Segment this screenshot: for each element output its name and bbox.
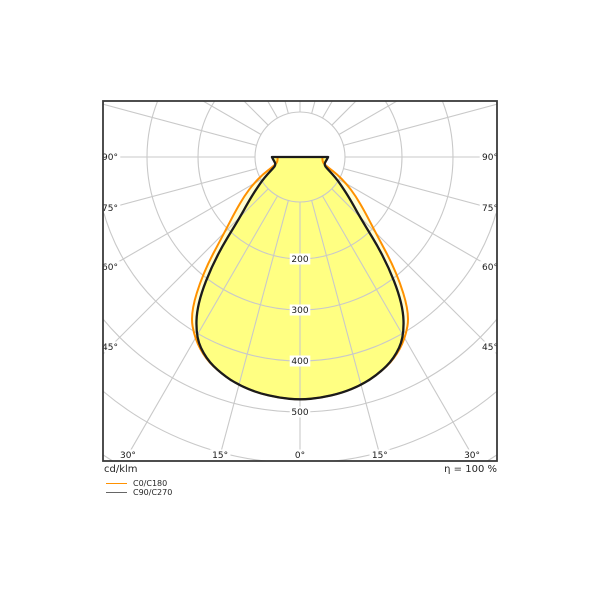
legend-label-c0-c180: C0/C180 xyxy=(133,479,167,488)
grid-spoke xyxy=(332,0,600,125)
angle-tick-label: 60° xyxy=(482,263,498,273)
angle-tick-label: 0° xyxy=(295,451,305,461)
grid-spoke xyxy=(0,2,257,146)
angle-tick-label: 75° xyxy=(102,204,118,214)
angle-tick-label: 75° xyxy=(482,204,498,214)
grid-spoke xyxy=(0,0,268,125)
grid-spoke xyxy=(343,2,600,146)
legend-label-c90-c270: C90/C270 xyxy=(133,488,172,497)
legend: C0/C180 C90/C270 xyxy=(106,479,172,497)
photometric-diagram: 20030040050030°15°0°15°30°90°90°75°75°60… xyxy=(0,0,600,600)
grid-spoke xyxy=(0,0,261,135)
angle-tick-label: 90° xyxy=(482,153,498,163)
angle-tick-label: 60° xyxy=(102,263,118,273)
angle-tick-label: 90° xyxy=(102,153,118,163)
grid-spoke xyxy=(312,0,456,114)
grid-spoke xyxy=(339,0,600,135)
radial-tick-label: 500 xyxy=(291,408,308,418)
radial-tick-label: 300 xyxy=(291,306,308,316)
polar-light-distribution-plot: 20030040050030°15°0°15°30°90°90°75°75°60… xyxy=(0,0,600,600)
angle-tick-label: 15° xyxy=(372,451,388,461)
legend-item-c0-c180: C0/C180 xyxy=(106,479,172,488)
light-output-ratio-label: η = 100 % xyxy=(444,464,497,476)
radial-tick-label: 400 xyxy=(291,357,308,367)
grid-spoke xyxy=(145,0,289,114)
radial-units-label: cd/klm xyxy=(104,464,138,476)
angle-tick-label: 45° xyxy=(102,343,118,353)
angle-tick-label: 45° xyxy=(482,343,498,353)
radial-tick-label: 200 xyxy=(291,255,308,265)
legend-line-c90-c270 xyxy=(106,492,127,493)
legend-line-c0-c180 xyxy=(106,483,127,484)
legend-item-c90-c270: C90/C270 xyxy=(106,488,172,497)
angle-tick-label: 15° xyxy=(212,451,228,461)
angle-tick-label: 30° xyxy=(120,451,136,461)
plot-area: 20030040050030°15°0°15°30°90°90°75°75°60… xyxy=(0,0,600,600)
angle-tick-label: 30° xyxy=(464,451,480,461)
